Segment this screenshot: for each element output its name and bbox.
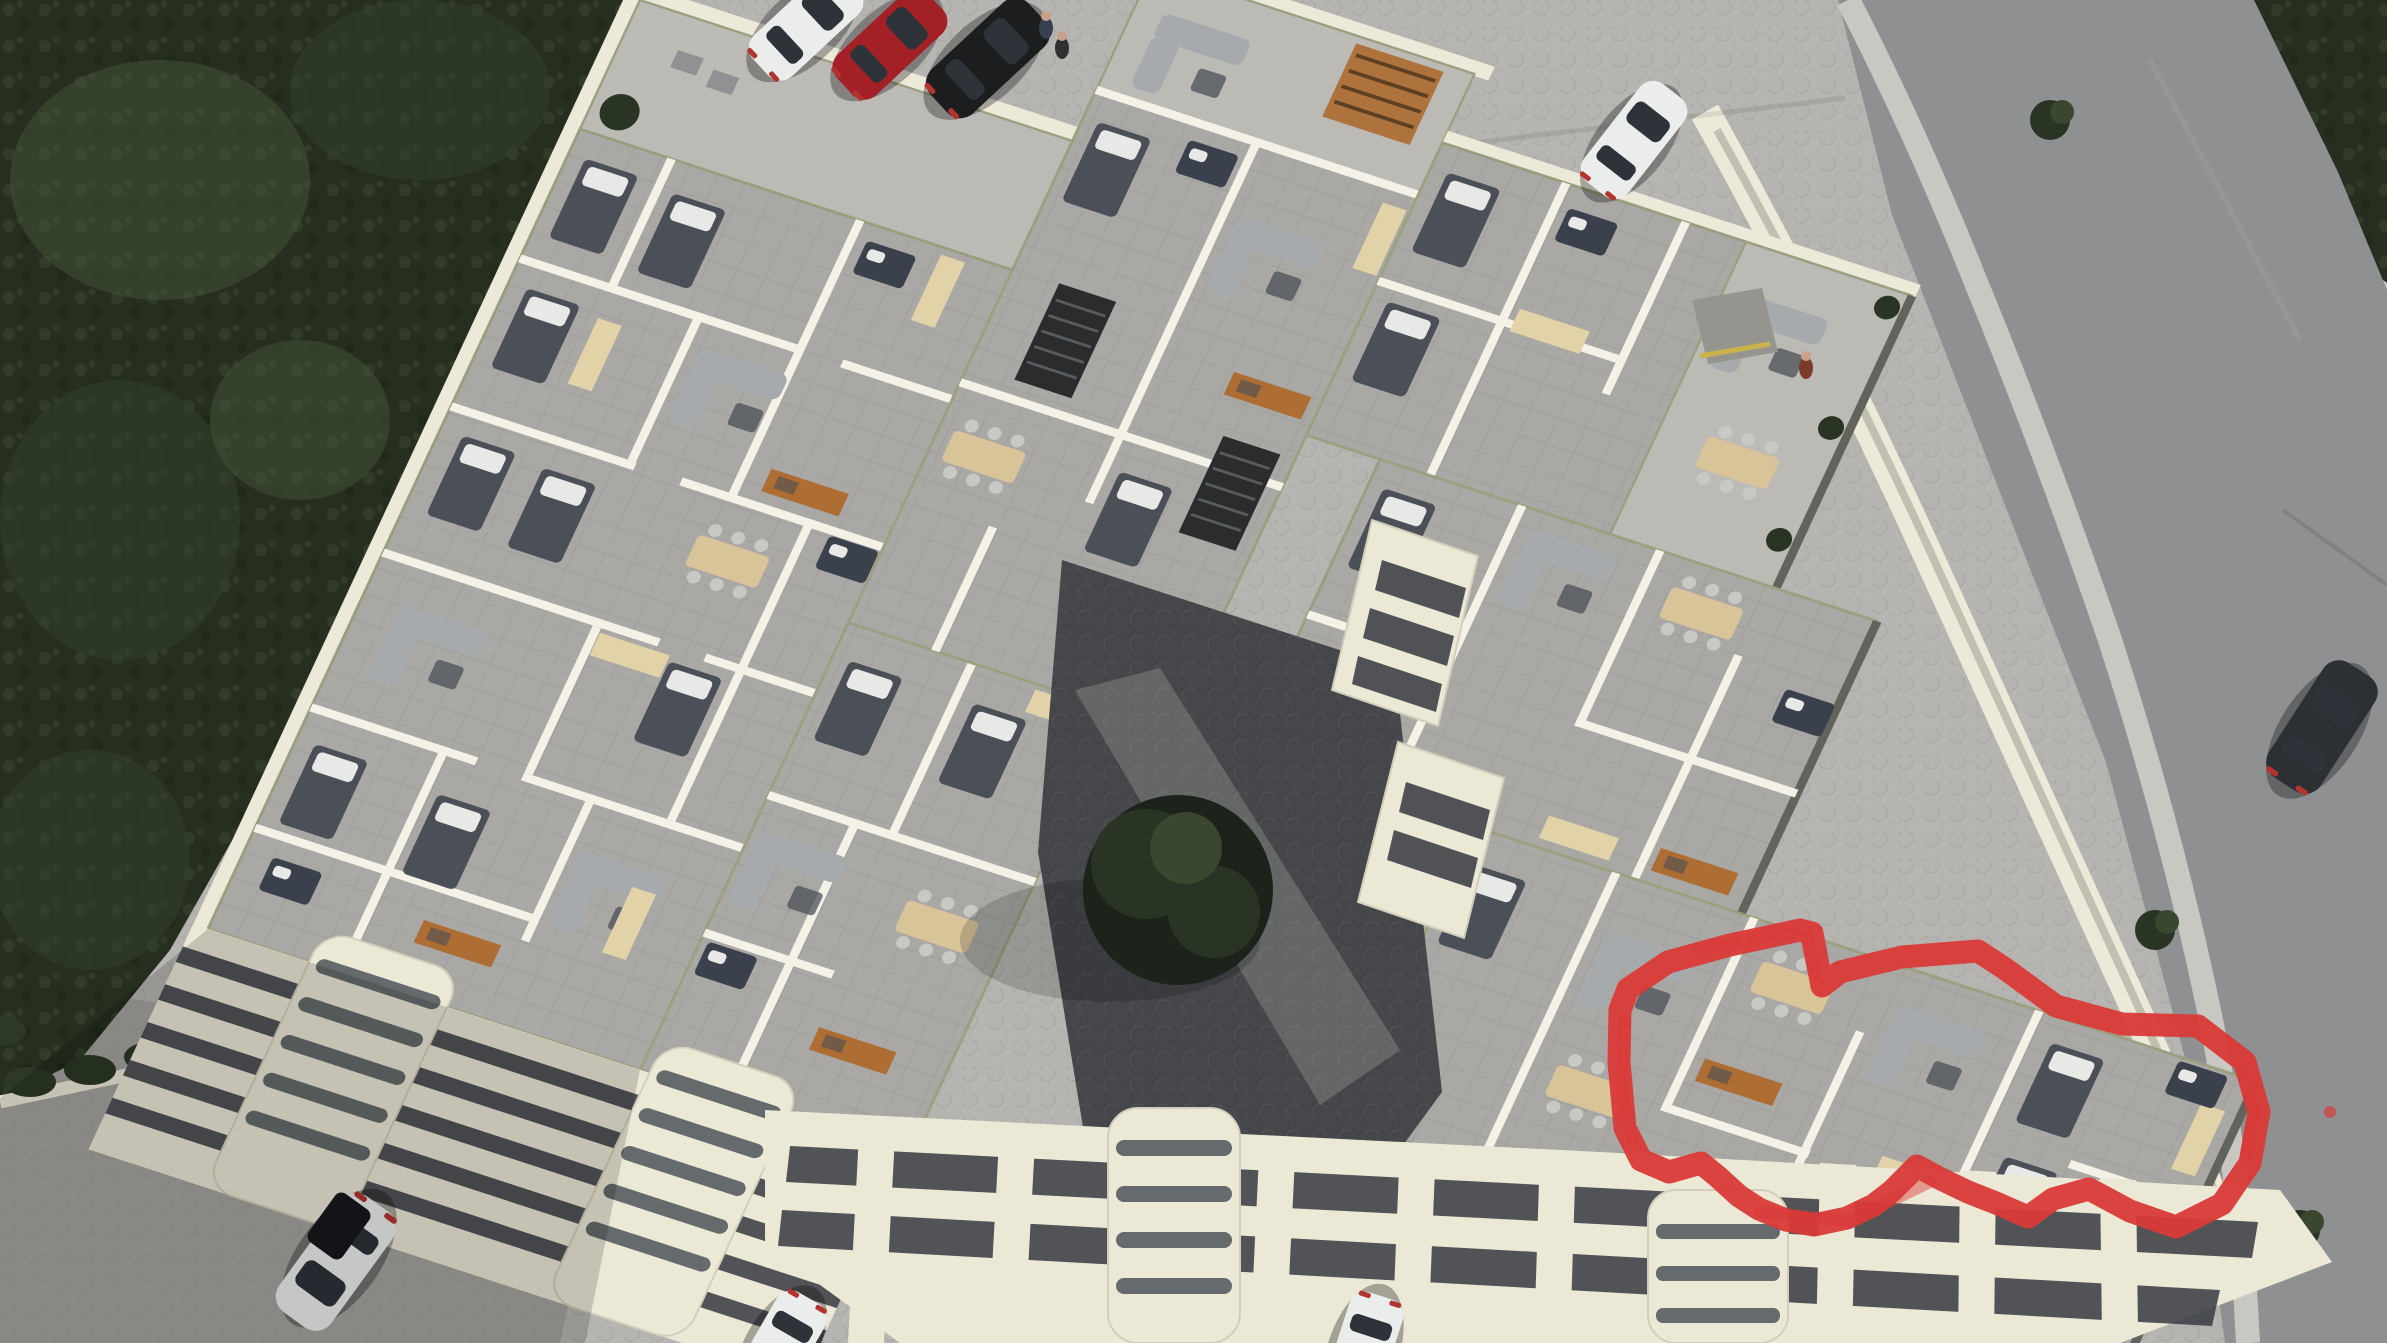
render-viewport [0,0,2387,1343]
pedestrian-3 [1799,351,1813,379]
balcony-glass [1656,1266,1780,1281]
marker-speck [2324,1106,2336,1118]
balcony-glass [1656,1308,1780,1323]
pedestrian-2 [1055,31,1069,59]
balcony-glass [1116,1232,1232,1248]
aerial-render [0,0,2387,1343]
canopy [0,380,240,660]
balcony-glass [1116,1140,1232,1156]
canopy-highlight [10,60,310,300]
courtyard-tree [1083,795,1273,985]
canopy-highlight [210,340,390,500]
balcony-glass [1116,1186,1232,1202]
balcony-glass [1656,1224,1780,1239]
canopy [290,0,550,180]
pedestrian-1 [1039,11,1053,39]
balcony-glass [1116,1278,1232,1294]
